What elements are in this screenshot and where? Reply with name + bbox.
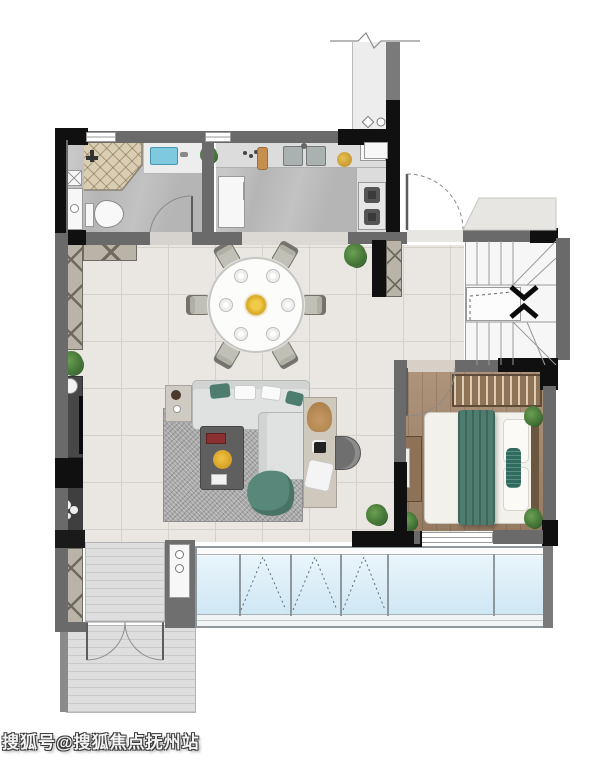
plan-linework [0,0,606,767]
chevron-down-icon [511,287,537,298]
pipe-diamond-icon [362,116,373,127]
door-swing-arc [407,174,463,230]
stair-treads [466,241,556,365]
stair-path-dashed [470,292,512,320]
casement-mark [241,557,286,610]
casement-mark [343,557,385,610]
casement-mark [293,557,337,610]
break-line [330,33,420,48]
door-swing-arc [87,622,125,660]
shower-enclosure-line [84,143,142,190]
door-swing-arc [150,196,192,232]
pipe-circle-icon [377,118,385,126]
door-swing-arc [407,368,455,416]
door-swing-arc [125,622,163,660]
entry-landing [463,198,556,230]
watermark-text: 搜狐号@搜狐焦点抚州站 [2,728,200,753]
chevron-up-icon [511,306,537,317]
floorplan-image: 搜狐号@搜狐焦点抚州站 [0,0,606,767]
